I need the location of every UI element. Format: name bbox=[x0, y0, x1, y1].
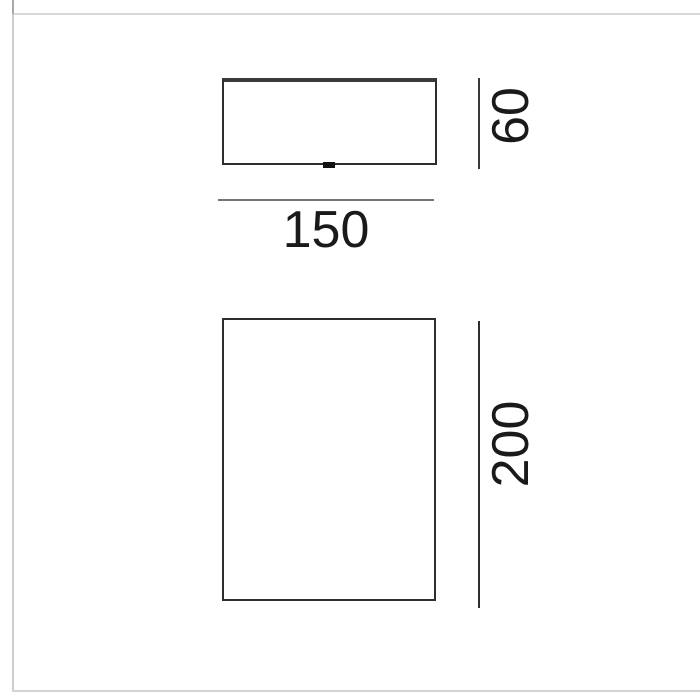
width-dimension-label: 150 bbox=[218, 204, 434, 256]
top-view-outline bbox=[222, 78, 437, 165]
dimension-drawing-page: 60 150 200 bbox=[0, 0, 700, 700]
mount-tab bbox=[323, 162, 335, 168]
front-view-height-dimension-label: 200 bbox=[485, 401, 537, 488]
front-view-outline bbox=[222, 318, 436, 601]
top-view-height-dimension-label: 60 bbox=[485, 87, 537, 145]
page-frame-top-border bbox=[12, 13, 700, 15]
page-frame-left-border-cap bbox=[12, 0, 14, 14]
top-view-height-dimension-line bbox=[478, 78, 480, 169]
page-frame-bottom-border bbox=[12, 690, 700, 692]
page-frame-left-border bbox=[12, 0, 14, 692]
front-view-height-dimension-line bbox=[478, 321, 480, 608]
